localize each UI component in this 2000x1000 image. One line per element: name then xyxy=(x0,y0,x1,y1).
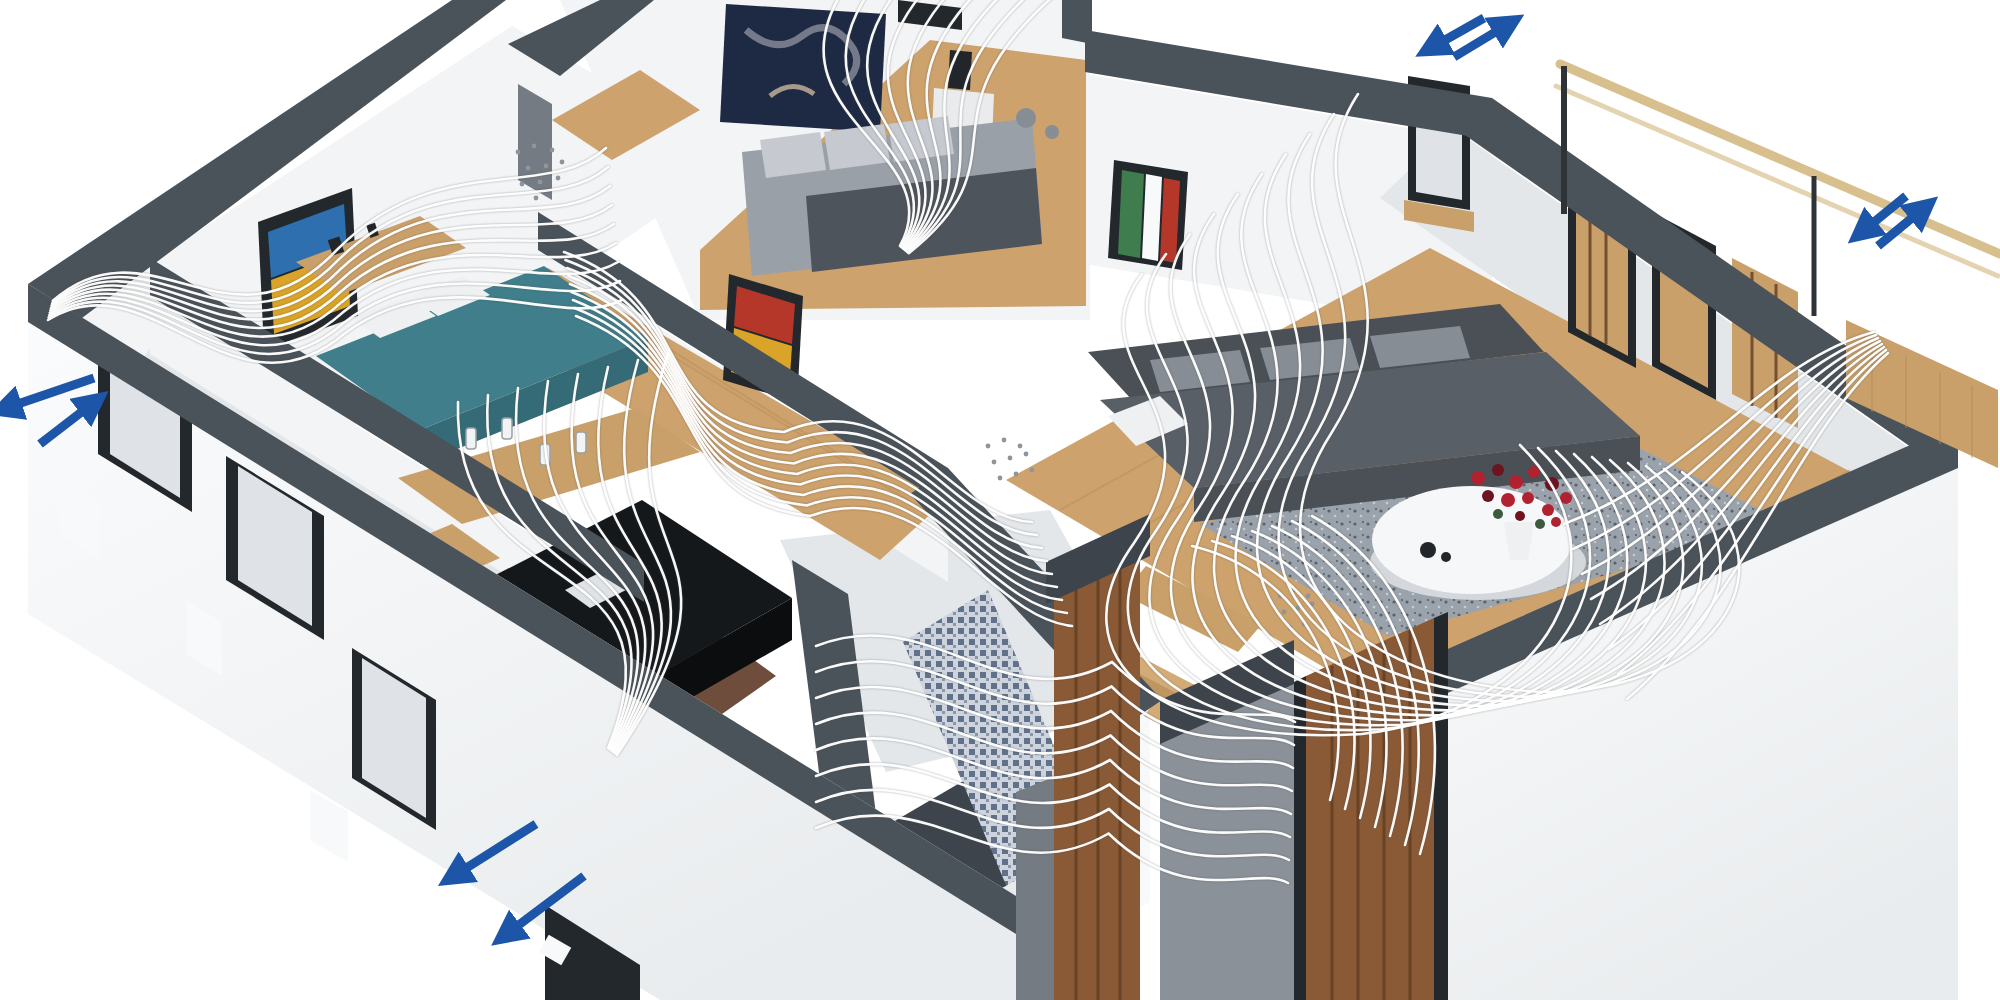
bed-pillow xyxy=(824,124,890,170)
vase xyxy=(1016,108,1036,128)
scene-svg xyxy=(0,0,2000,1000)
bedroom-2-art xyxy=(720,4,886,132)
entrance-side-gray xyxy=(1016,776,1056,1000)
table-decor xyxy=(1420,542,1436,558)
nightstand-lamp xyxy=(948,50,972,90)
vase xyxy=(1045,125,1059,139)
bed-pillow xyxy=(760,132,826,178)
ventilation-cutaway-illustration xyxy=(0,0,2000,1000)
